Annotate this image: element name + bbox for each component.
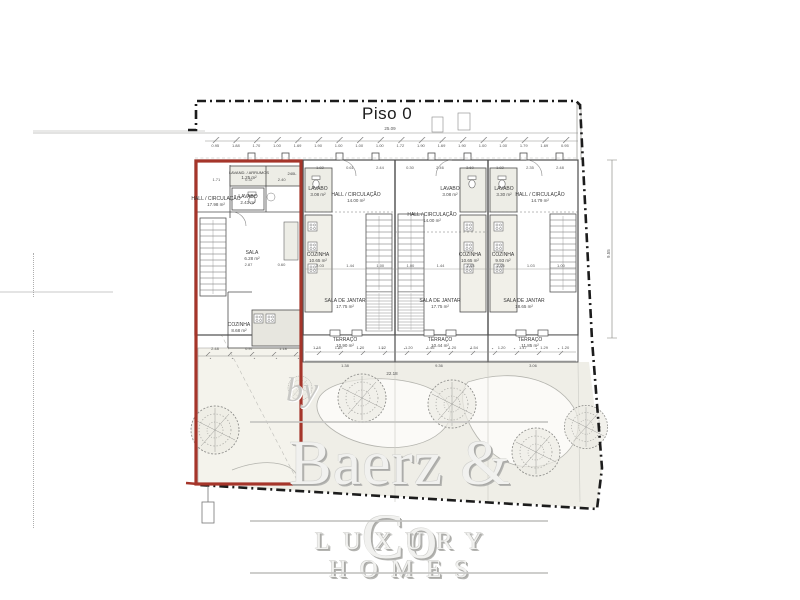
tree-icon [338, 374, 386, 422]
right-height-dimension: 9.55 [606, 249, 611, 258]
room-label-terraco-2: TERRAÇO10.90 m² [333, 337, 357, 349]
watermark-rule [250, 421, 548, 423]
watermark-rule [250, 520, 548, 522]
room-label-sala-3: SALA DE JANTAR17.75 m² [419, 298, 460, 310]
mid-dimension-chain: 2.031.441.001.001.442.032.051.031.00 [305, 263, 576, 268]
room-label-hall-4: HALL / CIRCULAÇÃO14.79 m² [515, 192, 564, 204]
room-label-cozinha-1: COZINHA8.68 m² [228, 322, 251, 334]
overall-bottom-dimension: 22.18 [386, 371, 397, 376]
room-label-lavabo-3: LAVABO3.08 m² [440, 186, 459, 198]
floorplan-sheet: Piso 0 25.09 0.951.881.701.001.691.901.0… [0, 0, 800, 600]
watermark-rule [250, 572, 548, 574]
overall-width-dimension: 25.09 [384, 126, 395, 131]
room-label-cozinha-3: COZINHA10.65 m² [459, 252, 482, 264]
room-label-laundry-1: LAVAND. / ARRUMOS1.25 m² [229, 171, 269, 180]
room-label-lavabo-4: LAVABO3.30 m² [494, 186, 513, 198]
gate-marker [202, 486, 214, 523]
room-label-terraco-4: TERRAÇO11.85 m² [518, 337, 542, 349]
terrace-sub-dimensions: 1.389.363.06 [298, 363, 580, 368]
sheet-margin-lines [0, 131, 205, 292]
tree-icon [191, 406, 239, 454]
room-label-sala-2: SALA DE JANTAR17.75 m² [324, 298, 365, 310]
watermark-tagline: LUXURY HOMES [252, 528, 558, 584]
door-dimension-chain: 1.820.612.440.302.463.601.822.352.48 [305, 165, 575, 170]
room-label-cozinha-2: COZINHA10.65 m² [307, 252, 330, 264]
sheet-fine-print [33, 330, 35, 528]
floor-title: Piso 0 [362, 104, 412, 124]
room-label-terraco-3: TERRAÇO10.44 m² [428, 337, 452, 349]
room-label-lavabo-2: LAVABO3.08 m² [308, 186, 327, 198]
watermark-by: by [286, 372, 318, 410]
room-label-cozinha-4: COZINHA9.93 m² [492, 252, 515, 264]
tank-label: 240L [288, 172, 297, 177]
room-label-sala-4: SALA DE JANTAR18.65 m² [503, 298, 544, 310]
room-label-sala-1: SALA6.28 m² [244, 250, 259, 262]
unit1-sala-dimensions: 2.870.60 [232, 262, 298, 267]
room-label-lavabo-1: LAVABO2.43 m² [238, 194, 257, 206]
top-dimension-chain: 0.951.881.701.001.691.901.001.001.001.72… [205, 143, 575, 148]
unit1-bottom-dimensions: 2.480.971.18 [198, 346, 300, 351]
room-label-hall-2: HALL / CIRCULAÇÃO14.00 m² [331, 192, 380, 204]
room-label-hall-3: HALL / CIRCULAÇÃO14.00 m² [407, 212, 456, 224]
sheet-fine-print [33, 253, 35, 297]
room-label-hall-1: HALL / CIRCULAÇÃO17.98 m² [191, 196, 240, 208]
